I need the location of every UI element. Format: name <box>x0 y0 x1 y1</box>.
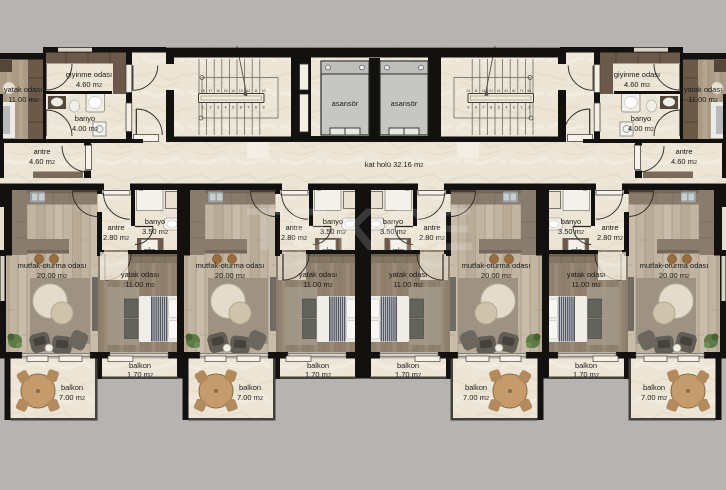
svg-text:7.00 m2: 7.00 m2 <box>237 393 263 402</box>
svg-text:yatak odası: yatak odası <box>121 270 159 279</box>
svg-text:balkon: balkon <box>397 361 419 370</box>
svg-text:giyinme odası: giyinme odası <box>66 70 112 79</box>
svg-text:3.50 m2: 3.50 m2 <box>558 227 584 236</box>
svg-text:4.60 m2: 4.60 m2 <box>29 157 55 166</box>
svg-text:TEKCE: TEKCE <box>246 196 479 263</box>
svg-text:11.00 m2: 11.00 m2 <box>688 95 718 104</box>
svg-text:11.00 m2: 11.00 m2 <box>393 280 423 289</box>
svg-text:20.00 m2: 20.00 m2 <box>659 271 689 280</box>
svg-text:7.00 m2: 7.00 m2 <box>463 393 489 402</box>
svg-text:4.60 m2: 4.60 m2 <box>671 157 697 166</box>
svg-text:yatak odası: yatak odası <box>4 85 42 94</box>
svg-text:giyinme odası: giyinme odası <box>614 70 660 79</box>
svg-text:1.70 m2: 1.70 m2 <box>127 370 153 379</box>
svg-text:4.60 m2: 4.60 m2 <box>76 80 102 89</box>
svg-text:balkon: balkon <box>643 383 665 392</box>
svg-text:2.80 m2: 2.80 m2 <box>597 233 623 242</box>
svg-text:balkon: balkon <box>307 361 329 370</box>
svg-text:balkon: balkon <box>239 383 261 392</box>
svg-text:20.00 m2: 20.00 m2 <box>215 271 245 280</box>
svg-text:yatak odası: yatak odası <box>684 85 722 94</box>
svg-text:antre: antre <box>675 147 692 156</box>
svg-text:asansör: asansör <box>332 99 359 108</box>
svg-text:asansör: asansör <box>391 99 418 108</box>
svg-text:2.80 m2: 2.80 m2 <box>103 233 129 242</box>
svg-text:1.70 m2: 1.70 m2 <box>305 370 331 379</box>
svg-text:balkon: balkon <box>575 361 597 370</box>
svg-text:yatak odası: yatak odası <box>299 270 337 279</box>
svg-text:antre: antre <box>33 147 50 156</box>
svg-text:11.00 m2: 11.00 m2 <box>571 280 601 289</box>
svg-text:1.70 m2: 1.70 m2 <box>395 370 421 379</box>
svg-text:balkon: balkon <box>129 361 151 370</box>
svg-text:3.50 m2: 3.50 m2 <box>142 227 168 236</box>
svg-text:yatak odası: yatak odası <box>389 270 427 279</box>
svg-text:20.00 m2: 20.00 m2 <box>481 271 511 280</box>
svg-text:20.00 m2: 20.00 m2 <box>37 271 67 280</box>
svg-text:banyo: banyo <box>561 217 581 226</box>
svg-text:4.00 m2: 4.00 m2 <box>628 124 654 133</box>
svg-text:7.00 m2: 7.00 m2 <box>641 393 667 402</box>
svg-text:mutfak-oturma odası: mutfak-oturma odası <box>18 261 87 270</box>
svg-text:antre: antre <box>601 223 618 232</box>
svg-text:7.00 m2: 7.00 m2 <box>59 393 85 402</box>
svg-text:banyo: banyo <box>75 114 95 123</box>
svg-text:4.60 m2: 4.60 m2 <box>624 80 650 89</box>
svg-text:4.00 m2: 4.00 m2 <box>72 124 98 133</box>
svg-text:balkon: balkon <box>61 383 83 392</box>
svg-text:mutfak-oturma odası: mutfak-oturma odası <box>640 261 709 270</box>
svg-text:kat holü 32.16 m2: kat holü 32.16 m2 <box>365 160 424 169</box>
svg-text:yatak odası: yatak odası <box>567 270 605 279</box>
svg-text:antre: antre <box>107 223 124 232</box>
svg-text:11.00 m2: 11.00 m2 <box>303 280 333 289</box>
svg-text:11.00 m2: 11.00 m2 <box>8 95 38 104</box>
svg-text:balkon: balkon <box>465 383 487 392</box>
svg-text:1.70 m2: 1.70 m2 <box>573 370 599 379</box>
svg-text:11.00 m2: 11.00 m2 <box>125 280 155 289</box>
svg-text:banyo: banyo <box>145 217 165 226</box>
svg-text:banyo: banyo <box>631 114 651 123</box>
